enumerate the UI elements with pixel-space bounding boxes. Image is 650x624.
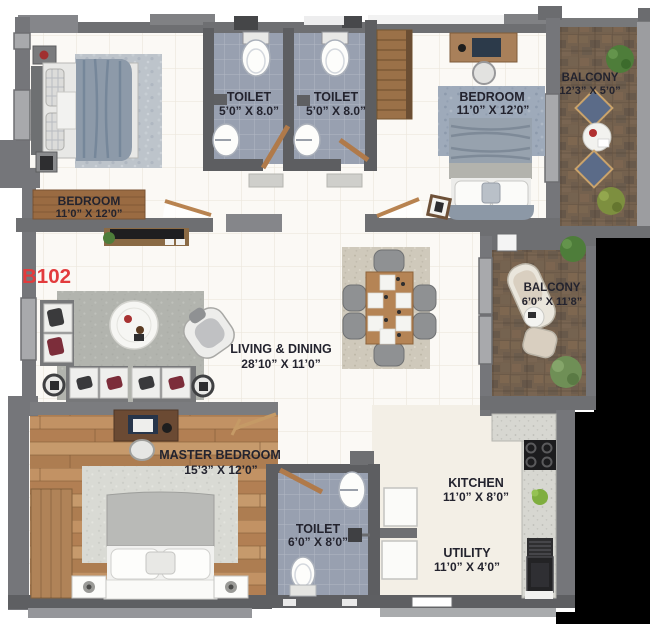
svg-text:15’3” X 12’0”: 15’3” X 12’0”	[184, 463, 257, 477]
svg-text:BEDROOM: BEDROOM	[459, 90, 524, 104]
svg-text:5’0” X 8.0”: 5’0” X 8.0”	[306, 104, 366, 118]
svg-text:TOILET: TOILET	[314, 90, 359, 104]
svg-text:LIVING & DINING: LIVING & DINING	[230, 342, 331, 356]
svg-text:TOILET: TOILET	[227, 90, 272, 104]
svg-text:28’10” X 11’0”: 28’10” X 11’0”	[241, 357, 320, 371]
svg-text:6’0” X 11’8”: 6’0” X 11’8”	[522, 296, 583, 308]
svg-text:11’0” X 4’0”: 11’0” X 4’0”	[434, 560, 500, 574]
svg-text:11’0” X 8’0”: 11’0” X 8’0”	[443, 490, 509, 504]
svg-text:B102: B102	[22, 265, 71, 288]
svg-text:TOILET: TOILET	[296, 522, 341, 536]
svg-text:BALCONY: BALCONY	[562, 72, 619, 84]
svg-text:6’0” X 8’0”: 6’0” X 8’0”	[288, 535, 348, 549]
svg-text:5’0” X 8.0”: 5’0” X 8.0”	[219, 104, 279, 118]
svg-text:11’0” X 12’0”: 11’0” X 12’0”	[56, 208, 123, 220]
svg-text:KITCHEN: KITCHEN	[448, 476, 504, 490]
svg-text:12’3” X 5’0”: 12’3” X 5’0”	[559, 85, 620, 97]
svg-text:MASTER BEDROOM: MASTER BEDROOM	[159, 448, 281, 462]
svg-text:BEDROOM: BEDROOM	[58, 194, 121, 208]
svg-text:BALCONY: BALCONY	[524, 282, 581, 294]
svg-text:UTILITY: UTILITY	[443, 546, 491, 560]
svg-text:11’0” X 12’0”: 11’0” X 12’0”	[457, 103, 530, 117]
